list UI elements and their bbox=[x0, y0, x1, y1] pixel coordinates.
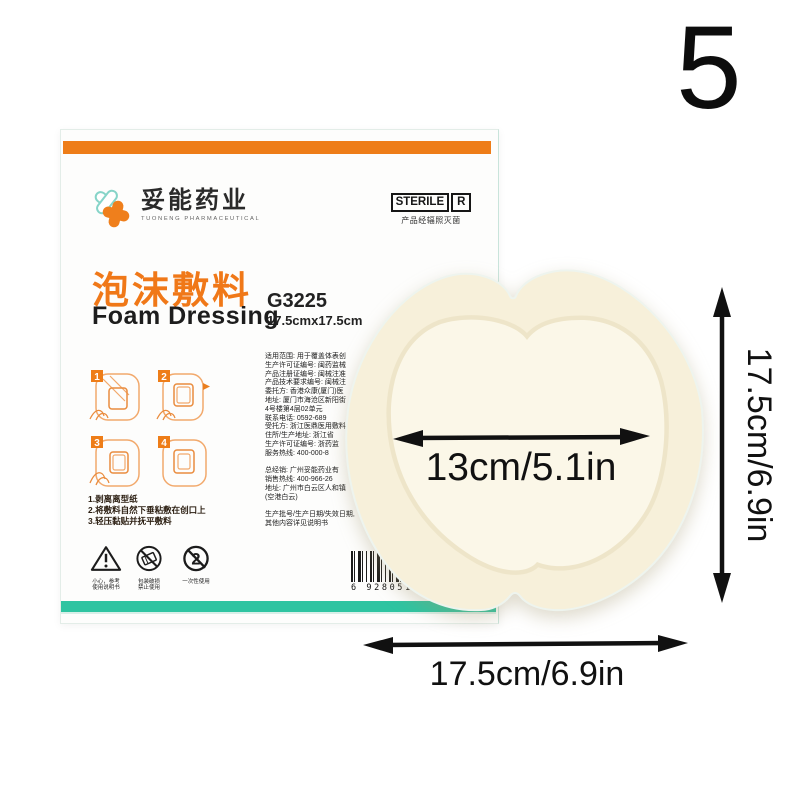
product-title-en: Foam Dressing bbox=[92, 302, 279, 331]
step-number: 4 bbox=[161, 438, 167, 449]
do-not-reuse-icon: 2 bbox=[181, 544, 211, 573]
brand-logo: 妥能药业 TUONENG PHARMACEUTICAL bbox=[89, 186, 279, 234]
usage-step-3-icon: 3 bbox=[87, 433, 145, 490]
warning-attention-caption: 小心，参考 使用说明书 bbox=[84, 579, 128, 591]
step-number: 2 bbox=[161, 372, 167, 383]
attention-triangle-icon bbox=[90, 544, 122, 573]
sterile-label: STERILE bbox=[391, 193, 450, 212]
bottom-width-label: 17.5cm/6.9in bbox=[430, 655, 625, 693]
brand-logo-icon bbox=[89, 186, 135, 232]
usage-step-4-icon: 4 bbox=[154, 433, 212, 490]
bottom-width-arrow bbox=[363, 635, 688, 654]
product-photo: 妥能药业 TUONENG PHARMACEUTICAL STERILER 产品经… bbox=[0, 0, 800, 800]
usage-step-1-icon: 1 bbox=[87, 367, 145, 424]
sterile-badge-boxes: STERILER bbox=[381, 192, 481, 212]
sterile-caption: 产品经辐照灭菌 bbox=[381, 215, 481, 226]
box-accent-bar bbox=[63, 141, 491, 154]
usage-steps: 1 2 3 bbox=[87, 367, 213, 490]
sterile-method-letter: R bbox=[451, 193, 471, 212]
warning-attention: 小心，参考 使用说明书 bbox=[84, 544, 128, 591]
brand-name-cn: 妥能药业 bbox=[141, 188, 260, 214]
height-label: 17.5cm/6.9in bbox=[740, 348, 778, 543]
brand-name: 妥能药业 TUONENG PHARMACEUTICAL bbox=[141, 188, 260, 222]
step-number: 1 bbox=[94, 372, 100, 383]
variant-number: 5 bbox=[676, 8, 742, 128]
step-number: 3 bbox=[94, 438, 100, 449]
usage-instructions: 1.剥离离型纸 2.将敷料自然下垂粘敷在创口上 3.轻压黏贴并抚平敷料 bbox=[88, 494, 206, 527]
warning-single-use: 2 一次性使用 bbox=[174, 544, 218, 585]
warning-damaged-package-caption: 包装破损 禁止使用 bbox=[127, 579, 171, 591]
model-number: G3225 bbox=[267, 290, 327, 313]
damaged-package-icon bbox=[134, 544, 164, 573]
usage-step-2-icon: 2 bbox=[154, 367, 212, 424]
brand-name-en: TUONENG PHARMACEUTICAL bbox=[141, 216, 260, 222]
warning-damaged-package: 包装破损 禁止使用 bbox=[127, 544, 171, 591]
height-arrow bbox=[713, 287, 731, 603]
warning-single-use-caption: 一次性使用 bbox=[174, 579, 218, 585]
sterile-badge: STERILER 产品经辐照灭菌 bbox=[381, 192, 481, 226]
foam-dressing bbox=[333, 260, 713, 635]
